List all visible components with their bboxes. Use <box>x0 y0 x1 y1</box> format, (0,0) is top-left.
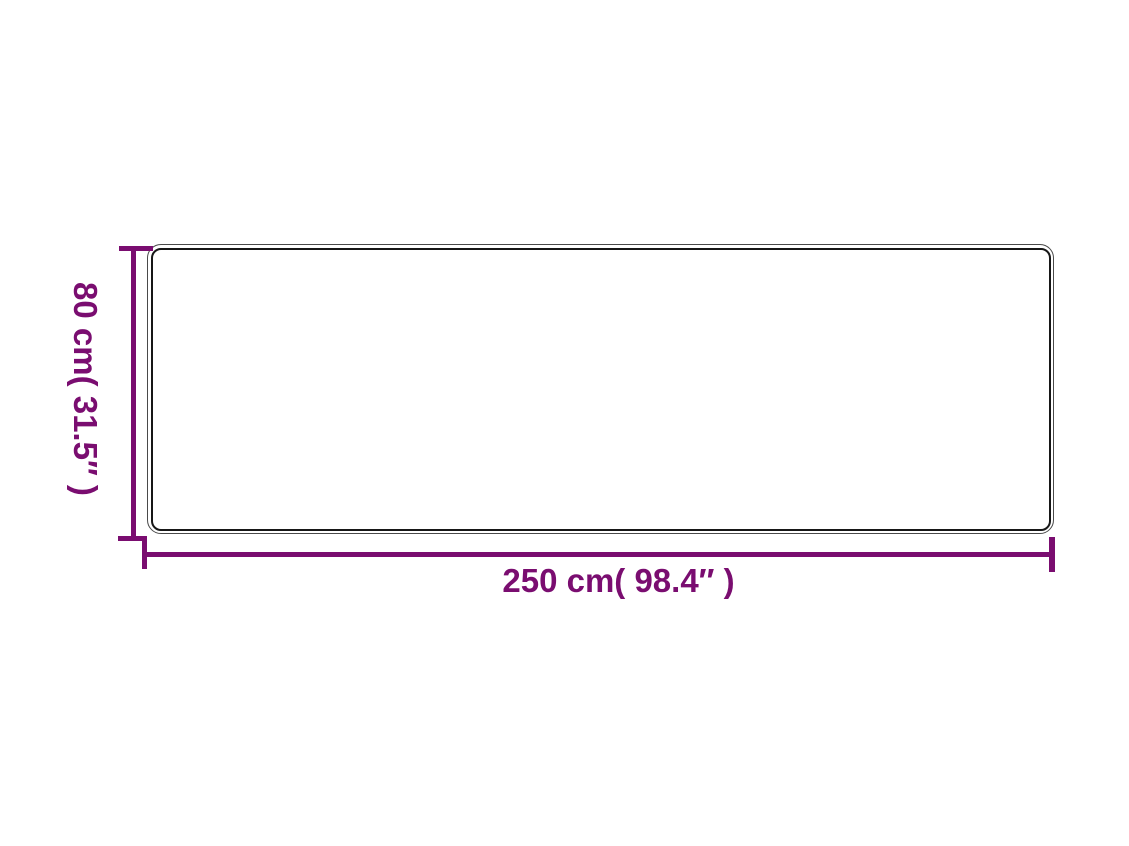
width-dimension-line <box>145 552 1053 557</box>
width-dimension-label: 250 cm( 98.4″ ) <box>165 562 1072 600</box>
height-dimension-line <box>131 248 136 539</box>
height-dimension-label: 80 cm( 31.5″ ) <box>66 244 104 534</box>
width-dimension-tick-left <box>142 539 147 569</box>
product-outline-inner <box>151 248 1051 531</box>
height-dimension-tick-top <box>119 246 153 251</box>
dimension-diagram-canvas: 80 cm( 31.5″ ) 250 cm( 98.4″ ) <box>0 0 1129 846</box>
product-outline <box>147 244 1054 534</box>
